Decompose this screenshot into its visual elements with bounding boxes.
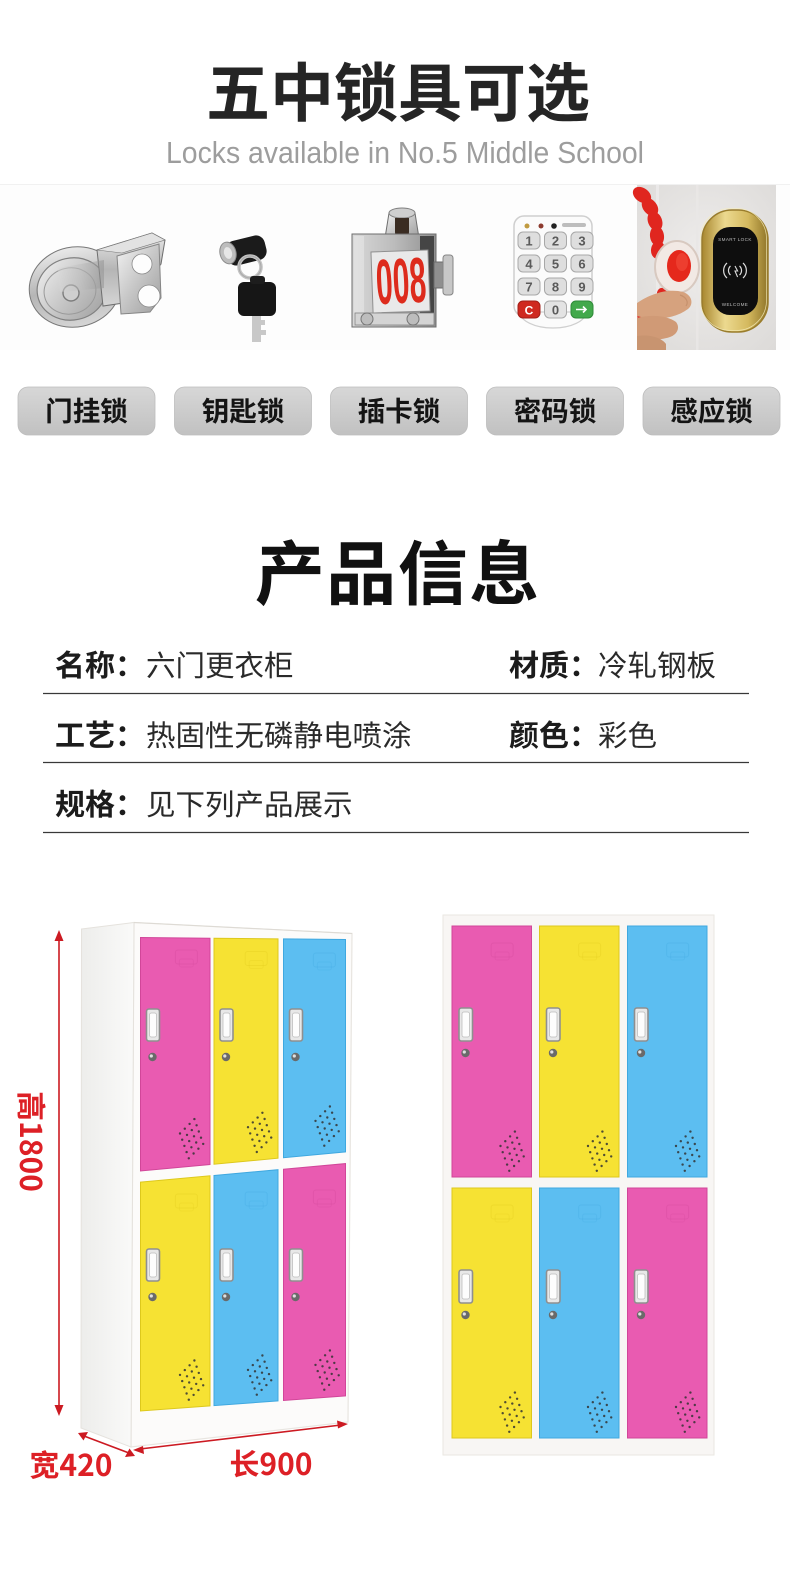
svg-text:7: 7: [525, 280, 532, 295]
svg-text:C: C: [525, 304, 534, 318]
svg-text:WELCOME: WELCOME: [722, 302, 749, 307]
svg-text:0: 0: [552, 303, 559, 318]
svg-text:9: 9: [578, 280, 585, 295]
svg-text:Locks available in No.5 Middle: Locks available in No.5 Middle School: [166, 135, 644, 170]
svg-text:5: 5: [552, 257, 559, 272]
svg-text:2: 2: [552, 234, 559, 249]
svg-text:6: 6: [578, 257, 585, 272]
svg-text:1: 1: [525, 234, 532, 249]
svg-text:3: 3: [578, 234, 585, 249]
svg-text:008: 008: [374, 244, 428, 319]
svg-text:SMART LOCK: SMART LOCK: [718, 237, 752, 242]
svg-text:4: 4: [525, 257, 533, 272]
svg-text:8: 8: [552, 280, 559, 295]
